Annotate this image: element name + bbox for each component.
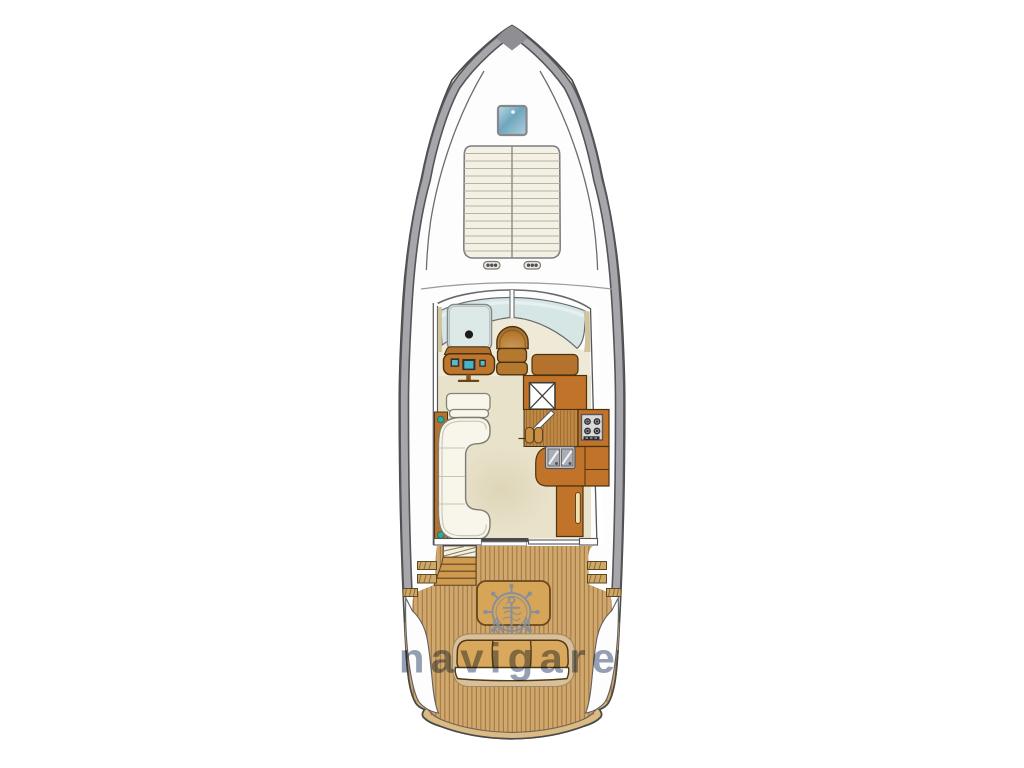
svg-text:navigare: navigare xyxy=(399,635,621,682)
